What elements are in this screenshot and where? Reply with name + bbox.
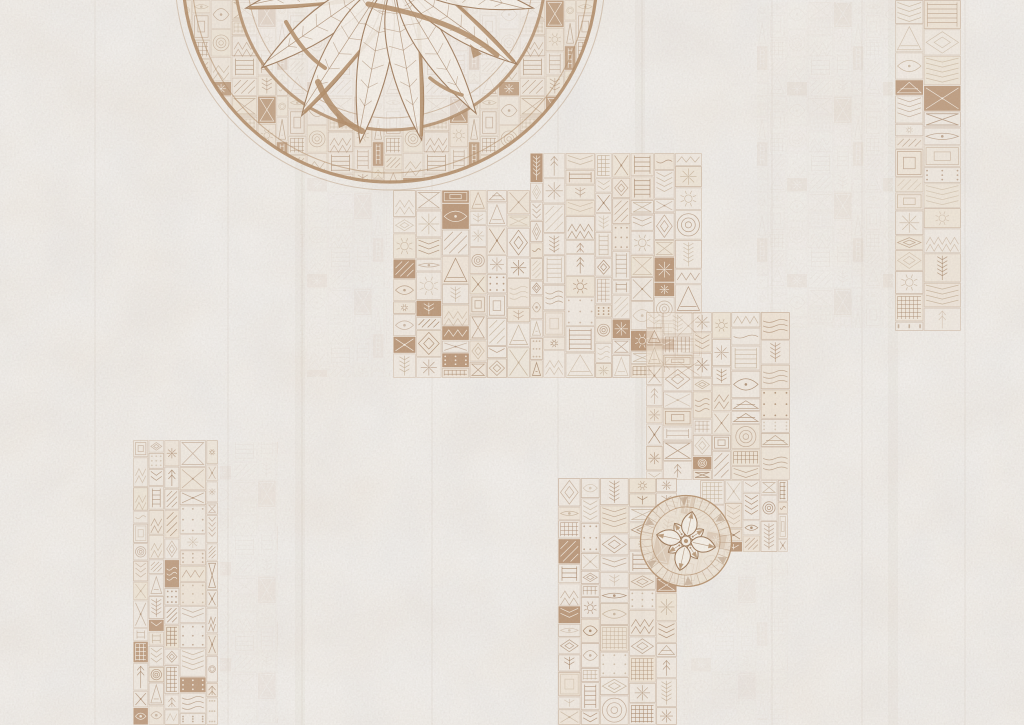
wallpaper-image bbox=[0, 0, 1024, 725]
artwork-canvas bbox=[0, 0, 1024, 725]
artwork-root bbox=[0, 0, 1024, 725]
paper-grain-layer bbox=[0, 0, 1024, 725]
